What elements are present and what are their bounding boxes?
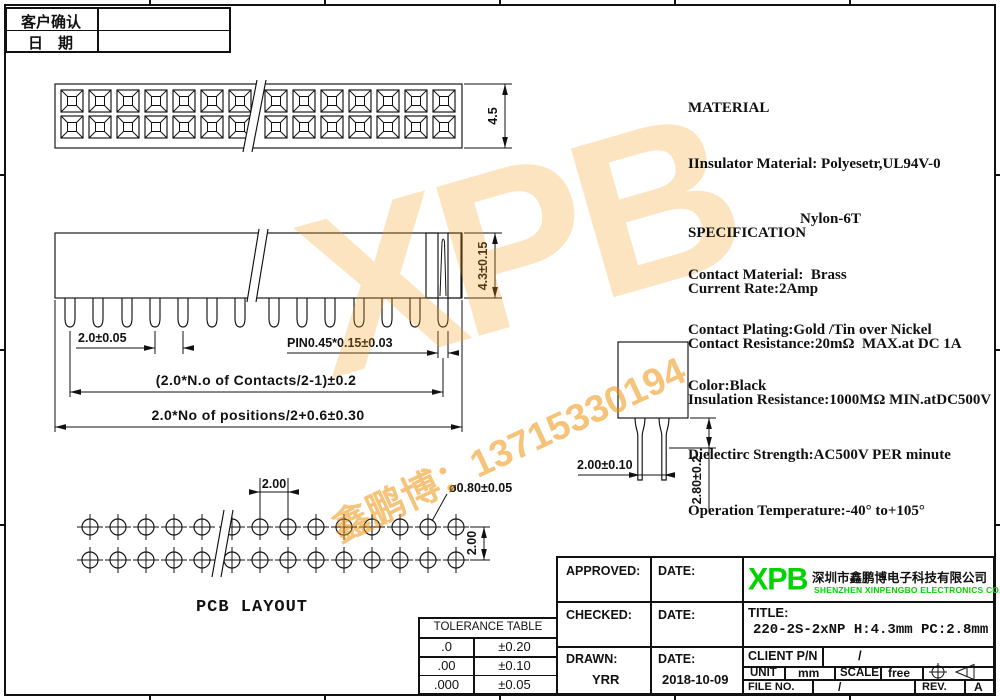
dim-positions-span: 2.0*No of positions/2+0.6±0.30 [151, 407, 364, 423]
material-heading: MATERIAL [688, 99, 941, 118]
tolerance-digits: .00 [420, 658, 473, 673]
checked-label: CHECKED: [566, 608, 632, 622]
spec-line: Contact Resistance:20mΩ MAX.at DC 1A [688, 335, 991, 354]
date-row-label: 日 期 [28, 32, 73, 53]
spec-line: Current Rate:2Amp [688, 280, 991, 299]
client-pn-value: / [858, 648, 862, 663]
dim-pcb-pitch: 2.00 [262, 477, 286, 491]
drill-hole-grid [77, 514, 469, 573]
tolerance-digits: .000 [420, 677, 473, 692]
through-hole-pin [410, 298, 420, 327]
company-name-cn: 深圳市鑫鹏博电子科技有限公司 [812, 567, 987, 586]
tolerance-value: ±0.10 [473, 658, 556, 673]
scale-value: free [888, 666, 910, 680]
tolerance-value: ±0.20 [473, 639, 556, 654]
drawn-label: DRAWN: [566, 652, 617, 666]
spec-line: Operation Temperature:-40° to+105° [688, 502, 991, 521]
dim-pcb-hole-dia: ø0.80±0.05 [449, 481, 512, 495]
dim-body-height: 4.3±0.15 [476, 242, 490, 291]
scale-label: SCALE [840, 667, 879, 679]
through-hole-pin [178, 298, 188, 327]
dim-pin-size: PIN0.45*0.15±0.03 [287, 336, 393, 350]
pcb-layout-label: PCB LAYOUT [196, 598, 308, 617]
dim-top-height: 4.5 [486, 107, 500, 124]
drawn-by: YRR [592, 672, 619, 687]
title-block: APPROVED: DATE: CHECKED: DATE: DRAWN: YR… [556, 556, 995, 695]
through-hole-pin [93, 298, 103, 327]
unit-value: mm [798, 666, 819, 680]
customer-confirm-table: 客户确认 日 期 [5, 7, 231, 53]
specification-block: SPECIFICATION Current Rate:2Amp Contact … [688, 187, 991, 557]
through-hole-pin [65, 298, 75, 327]
dim-pcb-row-pitch: 2.00 [465, 531, 479, 555]
dim-pin-pitch: 2.0±0.05 [78, 331, 127, 345]
engineering-drawing-page: 4.5 2.0±0.05 [0, 0, 1000, 700]
date-label: DATE: [658, 652, 695, 666]
drawn-date: 2018-10-09 [662, 672, 729, 687]
spec-line: Insulation Resistance:1000MΩ MIN.atDC500… [688, 391, 991, 410]
top-view: 4.5 [55, 80, 512, 152]
side-pin-right [659, 418, 669, 480]
through-hole-pin [354, 298, 364, 327]
through-hole-pin [150, 298, 160, 327]
front-view: 2.0±0.05 PIN0.45*0.15±0.03 (2.0*N.o of C… [55, 229, 502, 432]
rev-value: A [974, 680, 983, 694]
material-line: IInsulator Material: Polyesetr,UL94V-0 [688, 155, 941, 174]
through-hole-pin [438, 298, 448, 327]
through-hole-pin [269, 298, 279, 327]
through-hole-pin [325, 298, 335, 327]
spec-heading: SPECIFICATION [688, 224, 991, 243]
date-label: DATE: [658, 608, 695, 622]
company-name-en: SHENZHEN XINPENGBO ELECTRONICS CO.LTD [814, 585, 1000, 595]
file-no-label: FILE NO. [748, 681, 794, 693]
pin-row [65, 298, 448, 327]
file-no-value: / [838, 680, 841, 694]
tolerance-value: ±0.05 [473, 677, 556, 692]
through-hole-pin [235, 298, 245, 327]
confirm-row-label: 客户确认 [21, 11, 81, 32]
title-label: TITLE: [748, 605, 788, 620]
tolerance-table-title: TOLERANCE TABLE [420, 621, 556, 633]
spec-line: Dielectirc Strength:AC500V PER minute [688, 446, 991, 465]
tolerance-table: TOLERANCE TABLE .0 ±0.20 .00 ±0.10 .000 … [418, 617, 558, 695]
through-hole-pin [207, 298, 217, 327]
contact-section [426, 233, 461, 298]
date-label: DATE: [658, 564, 695, 578]
rev-label: REV. [922, 681, 947, 693]
unit-label: UNIT [750, 667, 777, 679]
company-logo: XPB [748, 562, 807, 598]
approved-label: APPROVED: [566, 564, 640, 578]
client-pn-label: CLIENT P/N [748, 649, 817, 663]
pcb-layout: 2.00 ø0.80±0.05 2.00 PCB LAYOUT [77, 477, 512, 617]
drawing-title: 220-2S-2xNP H:4.3mm PC:2.8mm [753, 622, 988, 638]
through-hole-pin [382, 298, 392, 327]
through-hole-pin [122, 298, 132, 327]
through-hole-pin [297, 298, 307, 327]
side-pin-left [635, 418, 645, 480]
dim-contacts-span: (2.0*N.o of Contacts/2-1)±0.2 [156, 372, 357, 388]
tolerance-digits: .0 [420, 639, 473, 654]
dim-side-pin-spacing: 2.00±0.10 [577, 458, 633, 472]
